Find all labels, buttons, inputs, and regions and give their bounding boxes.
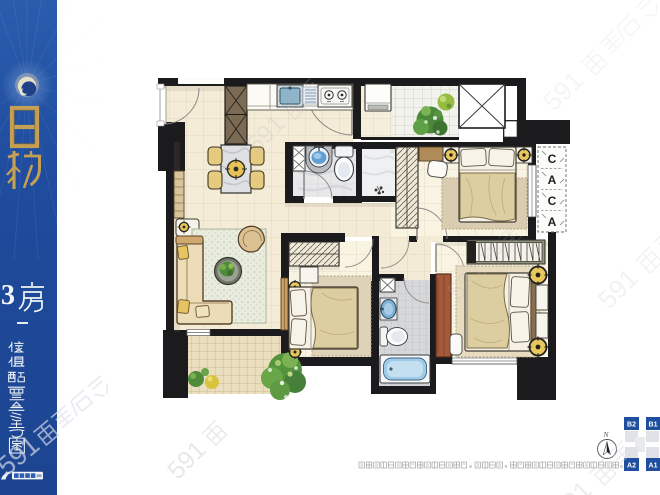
svg-text:C: C [548,194,557,208]
svg-text:C: C [548,152,557,166]
svg-text:B1: B1 [649,422,658,429]
svg-text:A: A [548,173,557,187]
svg-text:3: 3 [1,280,15,311]
svg-text:A2: A2 [627,463,636,470]
svg-text:N: N [603,430,610,439]
svg-text:A1: A1 [649,463,658,470]
svg-text:A: A [548,215,557,229]
svg-text:B2: B2 [627,422,636,429]
